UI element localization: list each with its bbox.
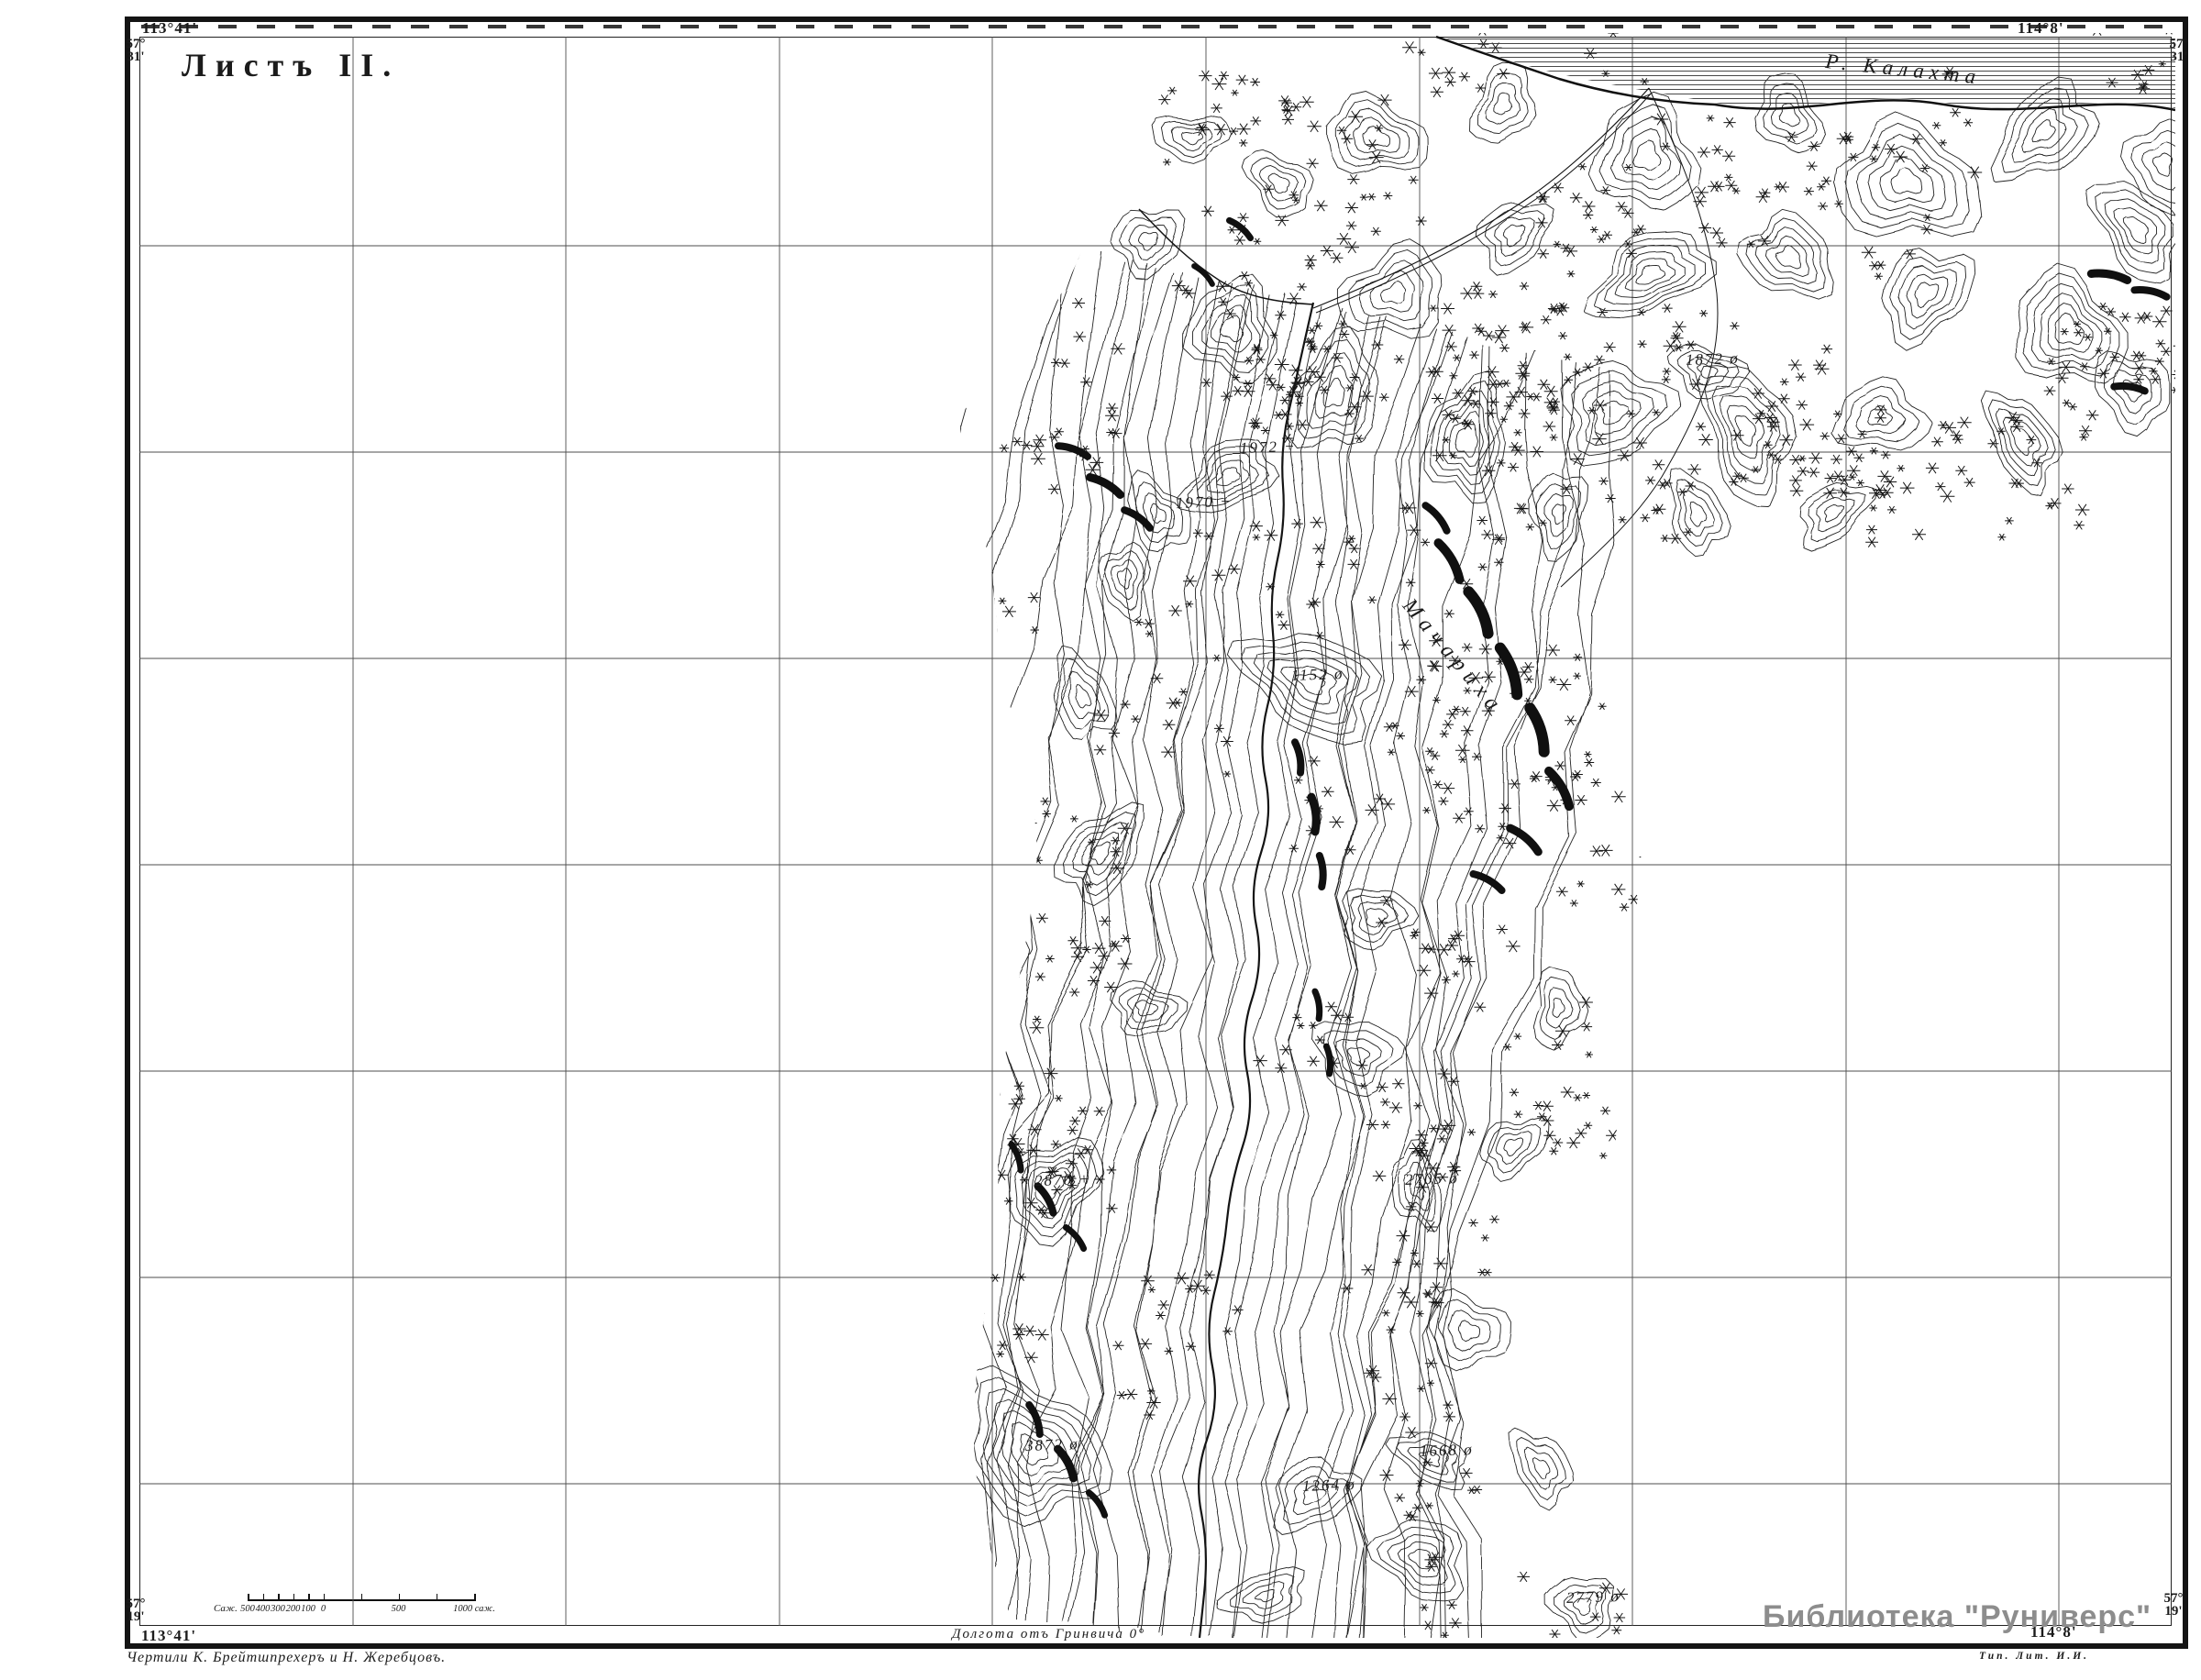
longitude-note: Долгота отъ Гринвича 0°: [952, 1627, 1145, 1642]
corner-lat-top-left-deg: 57°: [123, 38, 149, 50]
scale-bar-label: 200: [286, 1604, 301, 1614]
corner-lat-top-left-min: 31': [123, 50, 149, 63]
corner-lat-top-right-min: 31': [2166, 50, 2192, 63]
corner-lat-bottom-right: 57° 19': [2161, 1592, 2186, 1618]
scale-bar-unit-label: Саж.: [214, 1603, 238, 1614]
elevation-label: 2705 ø: [1405, 1169, 1459, 1189]
elevation-label: 1970 +: [1176, 492, 1233, 513]
credits-note: Чертили К. Брейтшпрехеръ и Н. Жеребцовъ.: [127, 1650, 446, 1666]
scale-bar-label: 1000 саж.: [453, 1604, 495, 1614]
sheet-title: Листъ II.: [182, 46, 400, 84]
runivers-watermark: Библиотека "Руниверс": [1763, 1599, 2151, 1635]
scale-bar-label: 500: [392, 1604, 406, 1614]
map-frame-inner: [139, 37, 2172, 1626]
elevation-label: 3872 ø: [1025, 1435, 1079, 1455]
scale-bar-tick: [399, 1594, 401, 1601]
corner-lat-bottom-right-deg: 57°: [2161, 1592, 2186, 1605]
scale-bar-label: 400: [256, 1604, 271, 1614]
scale-bar-tick: [361, 1594, 363, 1601]
corner-lon-top-left: 113°41': [142, 19, 197, 38]
corner-lat-bottom-left: 57° 19': [123, 1597, 149, 1623]
corner-lon-bottom-left: 113°41': [141, 1627, 196, 1645]
scale-bar-tick: [263, 1594, 265, 1601]
elevation-label: 2870 +: [1034, 1170, 1091, 1190]
corner-lat-bottom-left-deg: 57°: [123, 1597, 149, 1610]
scanned-map-page: { "colors":{"paper":"#ffffff","ink":"#1b…: [0, 0, 2201, 1680]
scale-bar-tick: [474, 1594, 476, 1601]
scale-bar: Саж.50040030020010005001000 саж.: [248, 1592, 474, 1623]
corner-lat-top-left: 57° 31': [123, 38, 149, 63]
corner-lat-top-right: 57° 31': [2166, 38, 2192, 63]
elevation-label: 1152 ø: [1291, 665, 1344, 685]
scale-bar-tick: [324, 1594, 326, 1601]
corner-lat-top-right-deg: 57°: [2166, 38, 2192, 50]
scale-bar-label: 100: [301, 1604, 315, 1614]
minute-tick-strip: [141, 25, 2170, 28]
scale-bar-tick: [248, 1594, 249, 1601]
scale-bar-tick: [293, 1594, 295, 1601]
scale-bar-label: 300: [271, 1604, 285, 1614]
elevation-label: 1264 ø: [1302, 1476, 1356, 1496]
elevation-label: 1668 ø: [1420, 1441, 1474, 1461]
elevation-label: 2779 ø: [1566, 1587, 1620, 1608]
corner-lat-bottom-right-min: 19': [2161, 1605, 2186, 1618]
scale-bar-label: 0: [321, 1604, 326, 1614]
scale-bar-tick: [308, 1594, 310, 1601]
elevation-label: 1872 ø: [1686, 349, 1740, 370]
corner-lon-top-right: 114°8': [2018, 19, 2064, 38]
scale-bar-tick: [278, 1594, 280, 1601]
scale-bar-tick: [437, 1594, 438, 1601]
printer-note: Тип. Лит. И.И.: [1979, 1651, 2089, 1662]
scale-bar-label: 500: [240, 1604, 255, 1614]
corner-lat-bottom-left-min: 19': [123, 1610, 149, 1623]
elevation-label: 1972 +: [1240, 437, 1297, 458]
